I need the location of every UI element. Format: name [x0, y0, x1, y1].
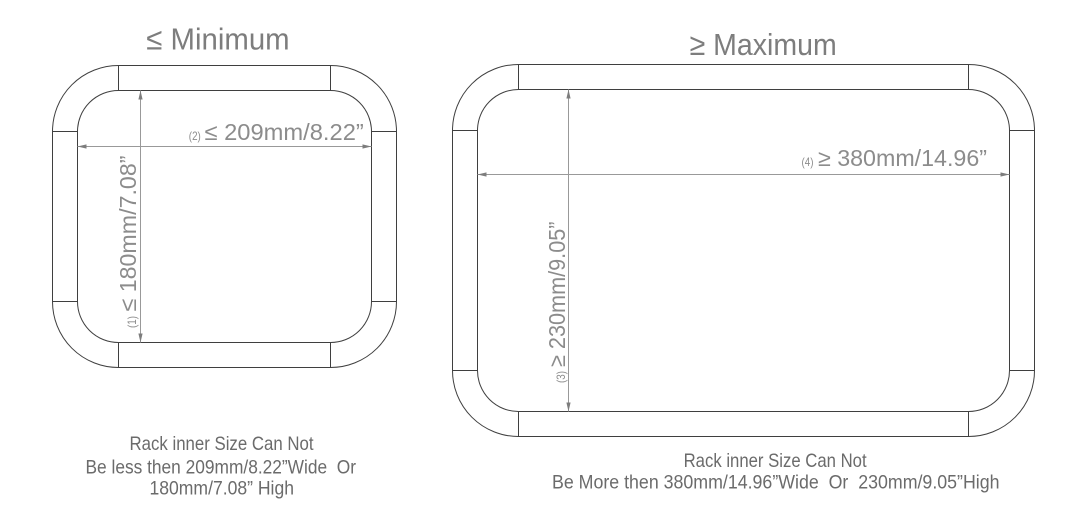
svg-text:≤ 180mm/7.08”: ≤ 180mm/7.08”: [115, 156, 141, 312]
svg-text:≥ 380mm/14.96”: ≥ 380mm/14.96”: [818, 145, 987, 171]
svg-text:Rack inner Size Can Not: Rack inner Size Can Not: [684, 450, 867, 472]
svg-text:Be less then 209mm/8.22”Wide: Be less then 209mm/8.22”Wide Or: [86, 457, 357, 479]
svg-text:≥ Maximum: ≥ Maximum: [690, 27, 837, 62]
svg-text:Be More then 380mm/14.96”Wide: Be More then 380mm/14.96”Wide Or 230mm/9…: [552, 472, 1000, 494]
svg-text:≤ 209mm/8.22”: ≤ 209mm/8.22”: [205, 119, 364, 145]
svg-text:(2): (2): [189, 129, 201, 143]
svg-text:(4): (4): [802, 155, 814, 169]
svg-text:(3): (3): [554, 371, 568, 383]
svg-text:180mm/7.08” High: 180mm/7.08” High: [150, 478, 295, 500]
svg-text:(1): (1): [125, 316, 139, 328]
svg-text:≤ Minimum: ≤ Minimum: [146, 22, 289, 57]
svg-text:Rack inner Size Can Not: Rack inner Size Can Not: [130, 433, 314, 455]
svg-text:≥ 230mm/9.05”: ≥ 230mm/9.05”: [544, 222, 570, 368]
